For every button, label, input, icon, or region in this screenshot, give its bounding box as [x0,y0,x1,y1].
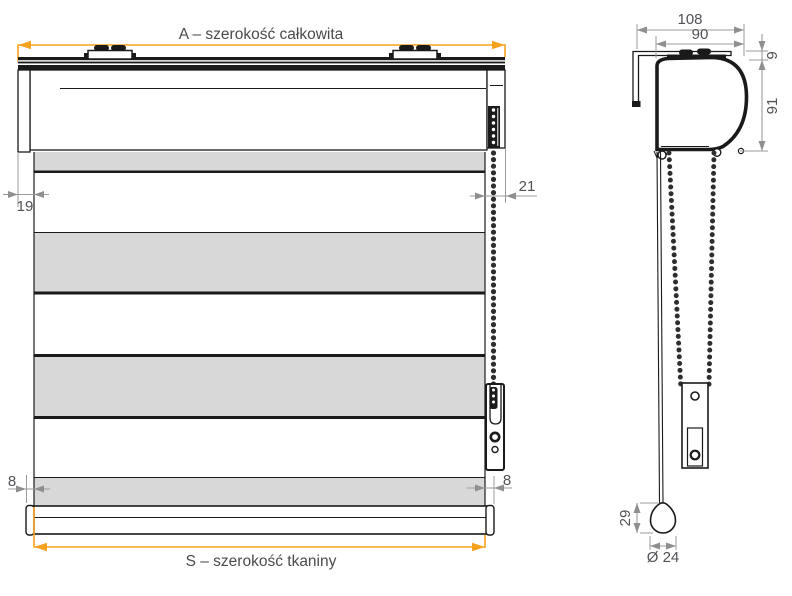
arrow-right-icon [734,41,744,48]
arrow-left-icon [656,41,666,48]
mounting-clip-left [84,45,136,59]
drawing-layer: A – szerokość całkowita [0,0,792,596]
fabric-panel [34,152,485,506]
arrow-right-icon [8,191,18,198]
arrow-right-icon [734,27,744,34]
fabric-stripe-3 [34,357,485,416]
fabric-stripe-1 [34,152,485,171]
dim-8-left-value: 8 [8,473,16,490]
dim-diameter-24-value: Ø 24 [647,549,680,566]
cassette-front [30,70,487,150]
arrow-right-icon [475,193,485,200]
total-width-label: A – szerokość całkowita [179,26,344,43]
dimension-108: 108 [637,11,744,56]
bottom-bar-end-cap-right [486,506,494,536]
arrow-right-icon [492,41,505,50]
arrow-up-icon [634,503,641,513]
dim-8-right-value: 8 [503,472,511,489]
arrow-right-icon [472,543,485,552]
cassette-side-cap-left [18,70,30,152]
front-view: A – szerokość całkowita [3,26,537,570]
arrow-left-icon [506,193,516,200]
dimension-9: 9 [746,34,781,151]
arrow-left-icon [18,41,31,50]
bottom-bar [26,506,494,536]
chain-guide [488,106,500,148]
arrow-right-icon [16,486,26,493]
dim-19-value: 19 [17,198,34,215]
fabric-stripe-4 [34,478,485,506]
dim-21-value: 21 [519,178,536,195]
fabric-width-label: S – szerokość tkaniny [186,553,337,570]
arrow-left-icon [34,543,47,552]
arrow-down-icon [634,523,641,533]
arrow-down-icon [759,41,766,51]
side-view: 108 90 9 91 [617,11,781,566]
cassette-profile [657,58,747,150]
dim-9-value: 9 [764,51,781,59]
dim-29-value: 29 [617,510,634,527]
arrow-left-icon [637,27,647,34]
dimension-diameter-24: Ø 24 [647,536,680,566]
arrow-up-icon [759,60,766,70]
arrow-down-icon [759,141,766,151]
fabric-stripe-2 [34,233,485,292]
chain-tensioner-front [486,384,504,470]
dim-90-value: 90 [692,26,709,43]
bottom-bar-end-cap-left [26,506,34,536]
roller-blind-technical-drawing: A – szerokość całkowita [0,0,792,596]
chain-holder-side [682,383,708,468]
mounting-clip-right [389,45,441,59]
chain-weight [651,503,676,533]
arrow-left-icon [34,191,44,198]
bead-chain-side [669,153,714,390]
dim-91-value: 91 [764,98,781,115]
